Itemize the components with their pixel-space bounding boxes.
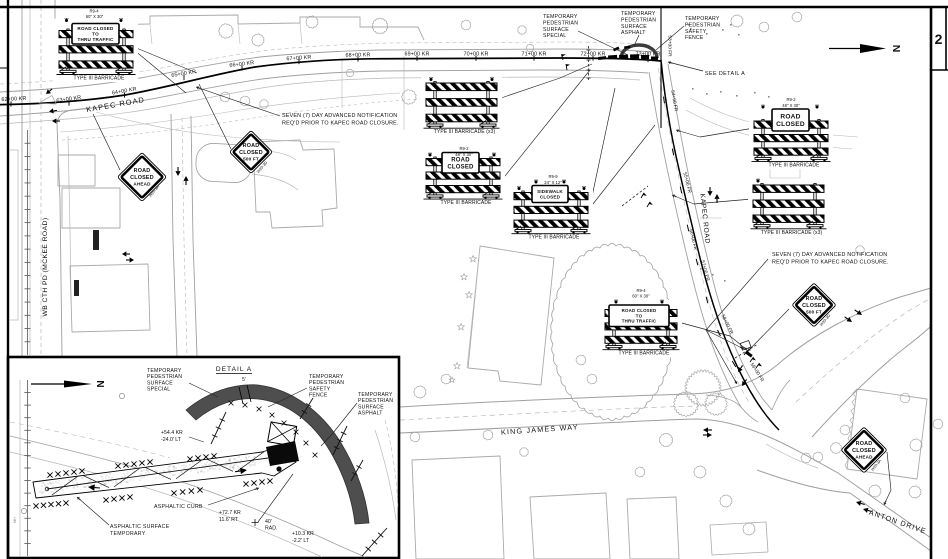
svg-text:SAFETY: SAFETY — [685, 29, 707, 35]
svg-text:ROAD: ROAD — [243, 143, 260, 149]
svg-text:REQ'D PRIOR TO KAPEC ROAD CLOS: REQ'D PRIOR TO KAPEC ROAD CLOSURE. — [772, 260, 889, 266]
svg-text:MH: MH — [13, 517, 17, 523]
svg-text:SURFACE: SURFACE — [543, 27, 569, 33]
svg-text:SURFACE: SURFACE — [358, 404, 384, 410]
svg-text:ASPHALT: ASPHALT — [621, 30, 646, 36]
svg-text:+54.4 KR: +54.4 KR — [161, 430, 183, 436]
svg-text:ASPHALTIC CURB: ASPHALTIC CURB — [154, 504, 203, 510]
svg-text:ROAD: ROAD — [780, 114, 800, 121]
svg-text:R9-2: R9-2 — [786, 97, 796, 102]
svg-text:ASPHALTIC SURFACE: ASPHALTIC SURFACE — [110, 524, 170, 530]
svg-text:48" X 30": 48" X 30" — [455, 152, 473, 157]
svg-text:RAD.: RAD. — [265, 526, 277, 532]
svg-text:SURFACE: SURFACE — [621, 24, 647, 30]
svg-text:71+00 KR: 71+00 KR — [522, 52, 547, 58]
svg-text:N: N — [890, 45, 902, 53]
svg-text:TO: TO — [92, 31, 99, 36]
svg-text:11.6' RT: 11.6' RT — [219, 517, 239, 523]
svg-text:-2.2' LT: -2.2' LT — [292, 538, 310, 544]
svg-text:THRU TRAFFIC: THRU TRAFFIC — [77, 37, 114, 42]
svg-text:SIDEWALK: SIDEWALK — [537, 189, 563, 194]
svg-text:TEMPORARY: TEMPORARY — [309, 374, 344, 380]
svg-text:TEMPORARY: TEMPORARY — [110, 531, 146, 537]
svg-text:+10.3 KR: +10.3 KR — [292, 531, 314, 537]
svg-text:SEE DETAIL A: SEE DETAIL A — [705, 71, 745, 77]
svg-text:500 FT: 500 FT — [243, 157, 259, 162]
svg-text:SPECIAL: SPECIAL — [147, 387, 170, 393]
svg-text:ROAD: ROAD — [134, 168, 151, 174]
svg-text:N: N — [94, 380, 105, 387]
svg-text:TEMPORARY: TEMPORARY — [685, 16, 720, 22]
svg-text:CLOSED: CLOSED — [239, 150, 263, 156]
svg-text:60" X 30": 60" X 30" — [632, 294, 650, 299]
svg-text:R9-4: R9-4 — [89, 9, 99, 14]
svg-text:ROAD: ROAD — [856, 441, 873, 447]
svg-text:-24.0' LT: -24.0' LT — [161, 437, 182, 443]
svg-text:CLOSED: CLOSED — [776, 121, 805, 128]
svg-text:72+00 KR: 72+00 KR — [581, 52, 606, 58]
svg-text:40': 40' — [265, 519, 272, 525]
svg-text:ROAD: ROAD — [451, 157, 470, 163]
svg-text:TEMPORARY: TEMPORARY — [621, 11, 656, 17]
svg-text:AHEAD: AHEAD — [133, 182, 151, 187]
svg-text:TEMPORARY: TEMPORARY — [358, 392, 393, 398]
svg-text:SPECIAL: SPECIAL — [543, 33, 566, 39]
svg-text:SEVEN (7) DAY ADVANCED NOTIFIC: SEVEN (7) DAY ADVANCED NOTIFICATION — [772, 252, 887, 258]
svg-text:WB CTH PD (MCKEE ROAD): WB CTH PD (MCKEE ROAD) — [42, 217, 49, 316]
svg-text:500 FT: 500 FT — [806, 310, 822, 315]
svg-text:R9-2: R9-2 — [459, 146, 469, 151]
svg-text:PEDESTRIAN: PEDESTRIAN — [309, 380, 344, 386]
svg-text:CLOSED: CLOSED — [130, 175, 154, 181]
svg-text:5': 5' — [242, 377, 246, 383]
svg-text:TEMPORARY: TEMPORARY — [543, 14, 578, 20]
svg-text:68+00 KR: 68+00 KR — [345, 52, 370, 58]
svg-text:48" X 30": 48" X 30" — [782, 103, 800, 108]
svg-text:SURFACE: SURFACE — [147, 380, 173, 386]
svg-text:60" X 30": 60" X 30" — [86, 14, 104, 19]
svg-text:AHEAD: AHEAD — [855, 455, 873, 460]
svg-text:ASPHALT: ASPHALT — [358, 411, 383, 417]
svg-text:SAFETY: SAFETY — [309, 386, 331, 392]
svg-text:TEMPORARY: TEMPORARY — [147, 368, 182, 374]
svg-text:+72.7 KR: +72.7 KR — [219, 510, 241, 516]
svg-text:69+00 KR: 69+00 KR — [405, 52, 430, 58]
svg-text:FENCE: FENCE — [685, 35, 704, 41]
svg-text:DETAIL A: DETAIL A — [216, 366, 252, 373]
svg-text:R9-4: R9-4 — [636, 288, 646, 293]
svg-text:PEDESTRIAN: PEDESTRIAN — [685, 22, 720, 28]
svg-text:PEDESTRIAN: PEDESTRIAN — [543, 20, 578, 26]
svg-text:TYPE III BARRICADE: TYPE III BARRICADE — [74, 76, 126, 82]
svg-text:PEDESTRIAN: PEDESTRIAN — [621, 17, 656, 23]
svg-text:TYPE III BARRICADE: TYPE III BARRICADE — [619, 351, 671, 357]
svg-text:ROAD CLOSED: ROAD CLOSED — [77, 26, 114, 31]
svg-text:THRU TRAFFIC: THRU TRAFFIC — [622, 318, 657, 323]
svg-text:2: 2 — [935, 31, 943, 47]
svg-text:REQ'D PRIOR TO KAPEC ROAD CLOS: REQ'D PRIOR TO KAPEC ROAD CLOSURE. — [282, 121, 399, 127]
svg-text:SEVEN (7) DAY ADVANCED NOTIFIC: SEVEN (7) DAY ADVANCED NOTIFICATION — [282, 113, 397, 119]
svg-text:CLOSED: CLOSED — [852, 448, 876, 454]
svg-text:TYPE III BARRICADE: TYPE III BARRICADE — [441, 200, 493, 206]
svg-text:24" X 12": 24" X 12" — [544, 180, 562, 185]
svg-text:70+00 KR: 70+00 KR — [464, 52, 489, 58]
svg-text:CLOSED: CLOSED — [802, 303, 826, 309]
svg-text:R9-9: R9-9 — [548, 174, 558, 179]
svg-text:PEDESTRIAN: PEDESTRIAN — [147, 374, 182, 380]
svg-text:PEDESTRIAN: PEDESTRIAN — [358, 398, 393, 404]
svg-text:TYPE III BARRICADE (x3): TYPE III BARRICADE (x3) — [761, 230, 823, 236]
svg-text:TYPE III BARRICADE (x3): TYPE III BARRICADE (x3) — [434, 129, 496, 135]
svg-text:FENCE: FENCE — [309, 393, 328, 399]
svg-text:TYPE III BARRICADE: TYPE III BARRICADE — [769, 163, 821, 169]
svg-text:CLOSED: CLOSED — [540, 194, 561, 199]
svg-text:CLOSED: CLOSED — [447, 164, 474, 170]
svg-text:TYPE III BARRICADE: TYPE III BARRICADE — [529, 235, 581, 241]
svg-text:ROAD: ROAD — [806, 296, 823, 302]
